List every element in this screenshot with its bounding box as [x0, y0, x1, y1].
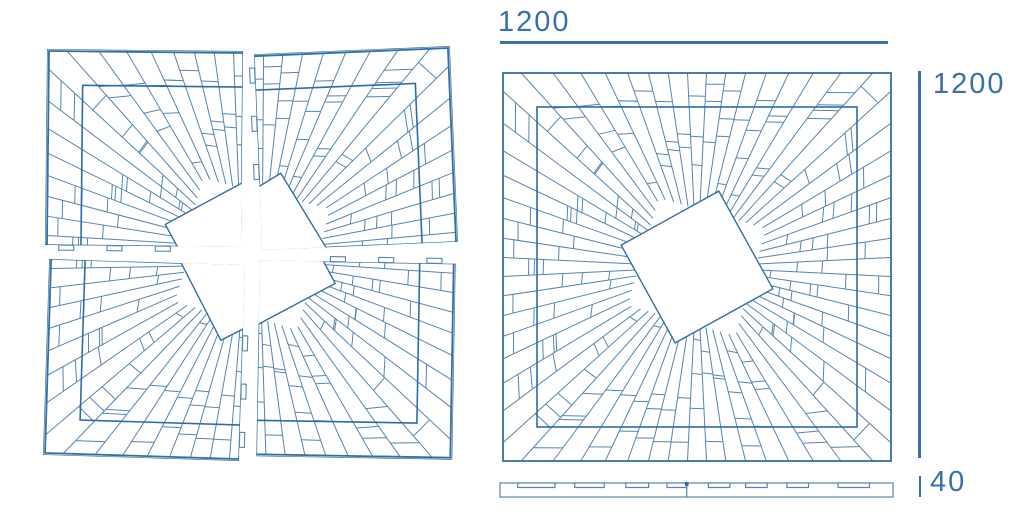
assembled-view-drawing: [492, 66, 904, 470]
height-dimension-line: [918, 71, 921, 458]
height-dimension-label: 1200: [933, 70, 1006, 99]
thickness-dimension-label: 40: [930, 468, 966, 497]
width-dimension-label: 1200: [498, 8, 571, 37]
width-dimension-line: [500, 41, 888, 44]
side-profile-drawing: [496, 476, 900, 504]
exploded-view-drawing: [34, 36, 486, 488]
thickness-dimension-tick: [919, 476, 921, 497]
drawing-canvas: 1200 1200 40: [0, 0, 1024, 518]
